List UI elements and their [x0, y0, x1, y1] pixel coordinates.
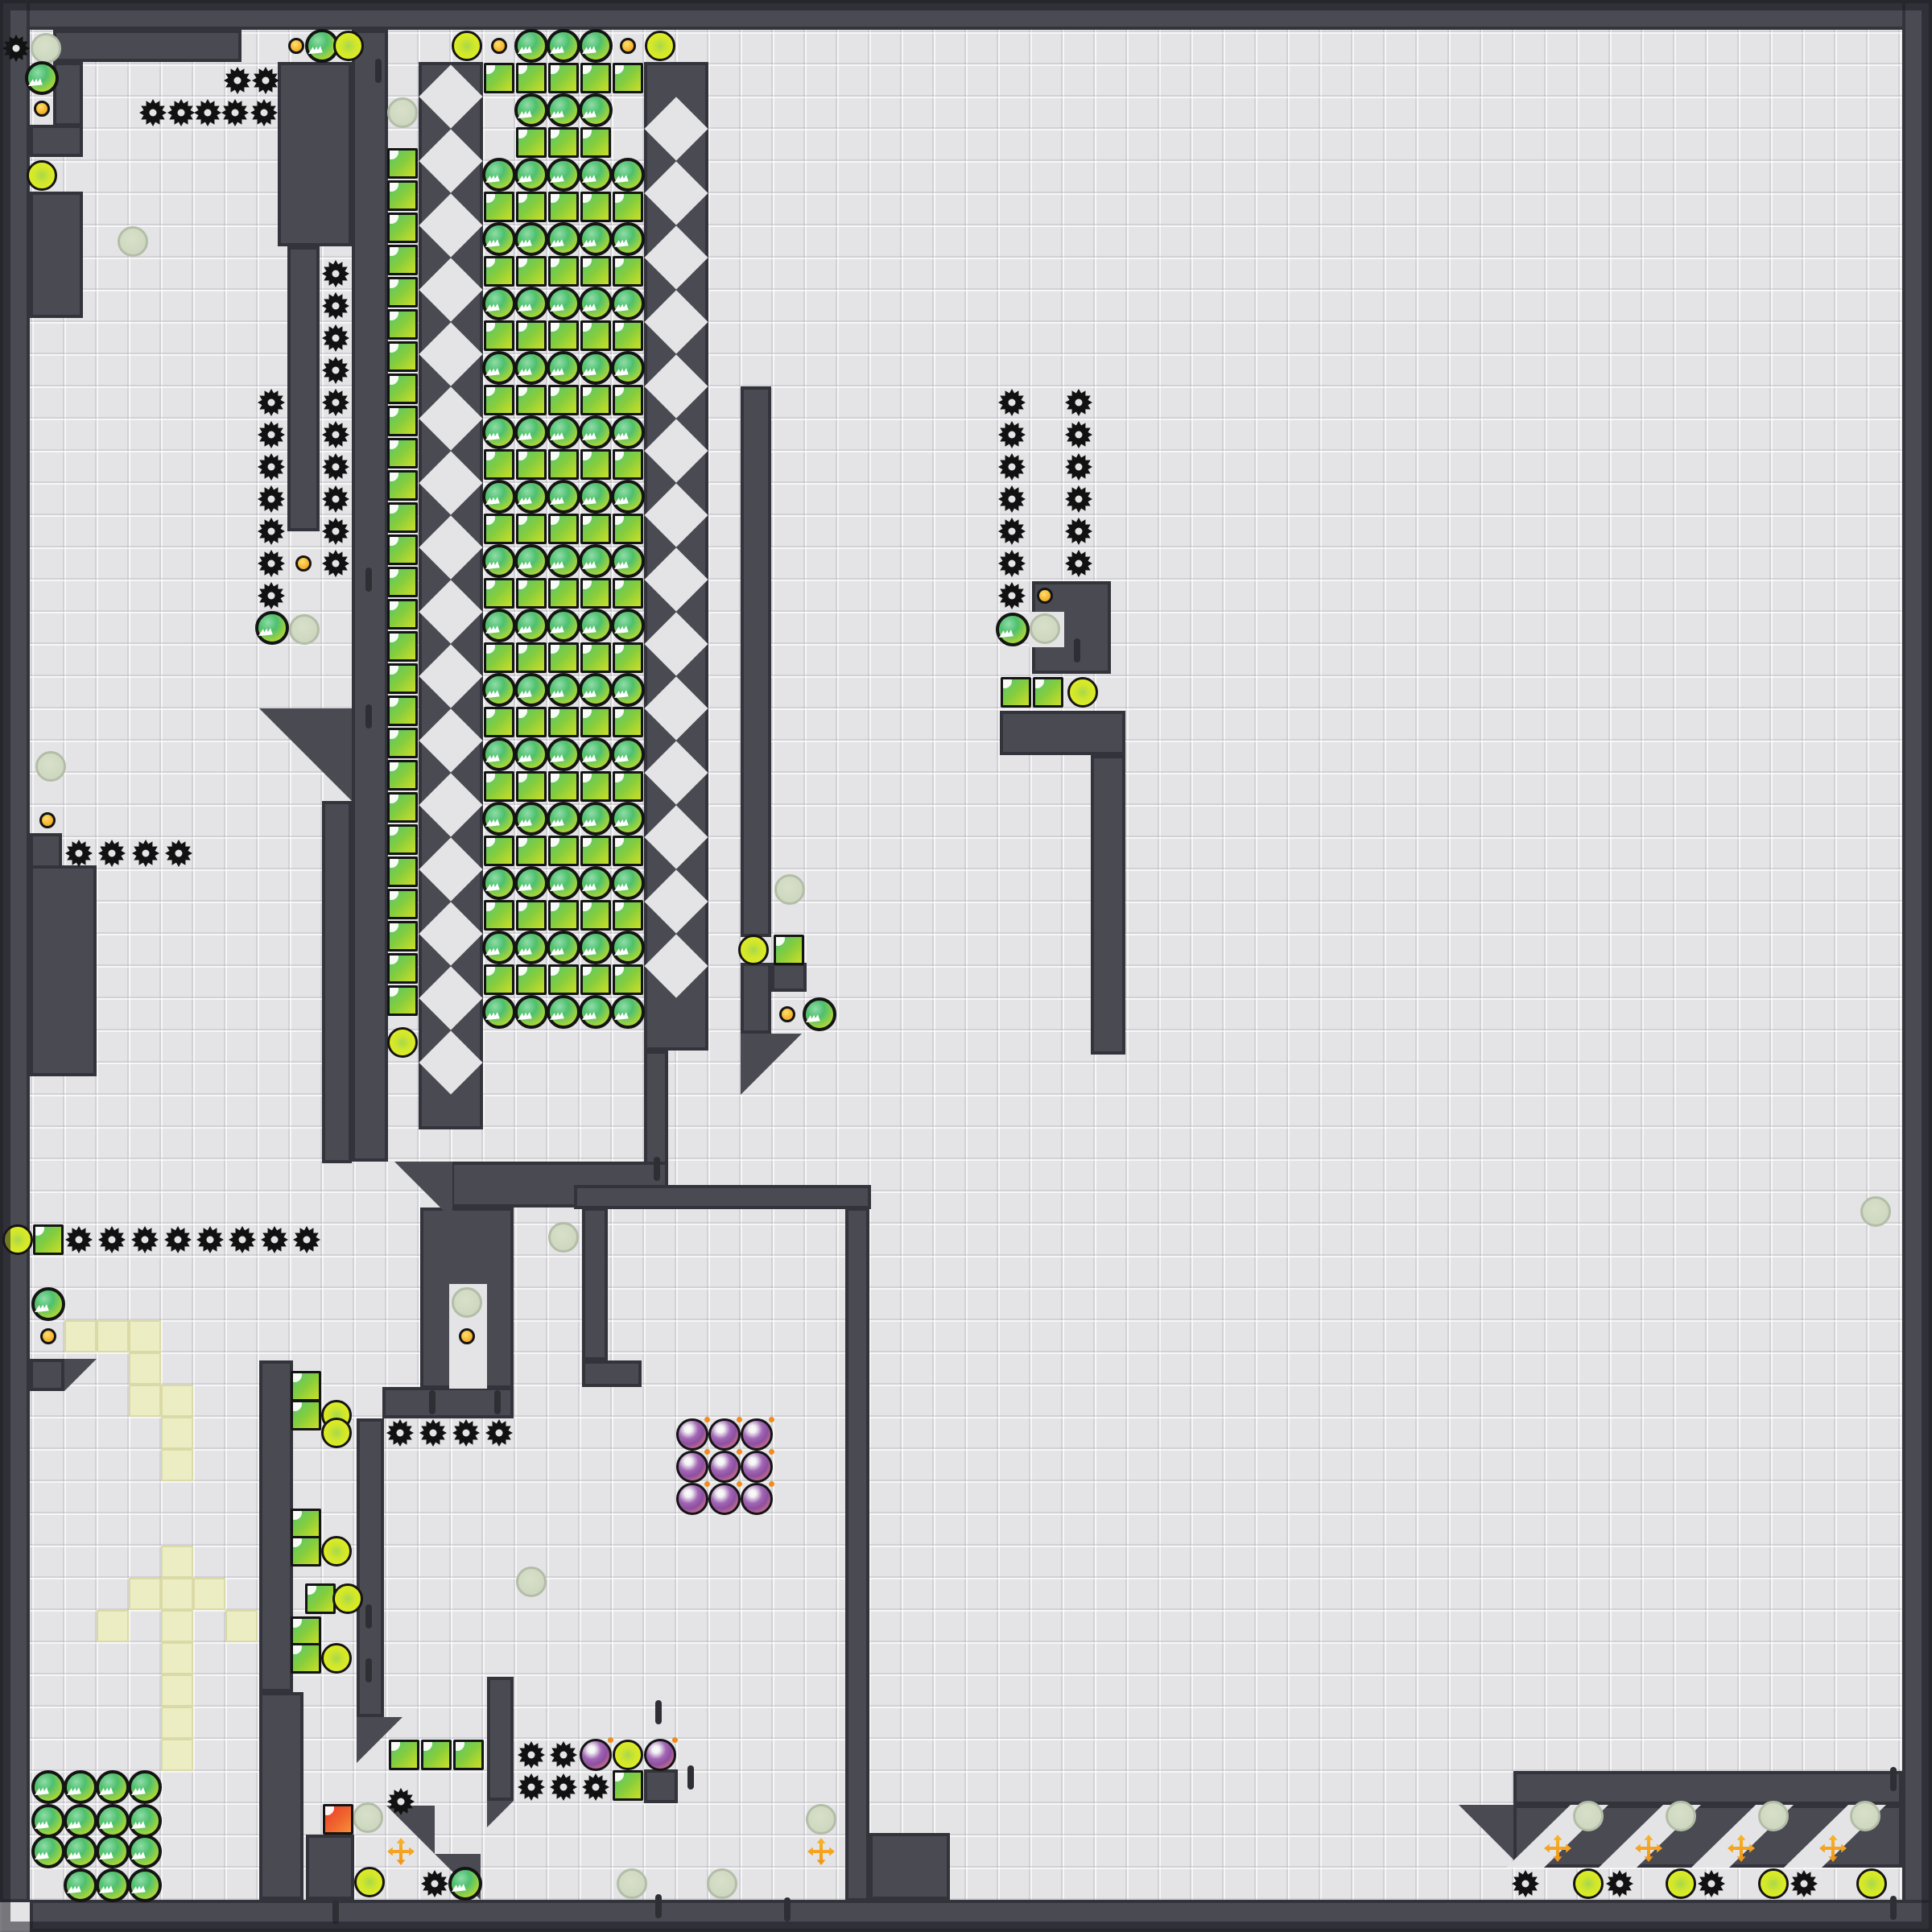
- fruit-candy-icon[interactable]: ▲▲▲: [96, 1835, 130, 1868]
- candy-block[interactable]: [548, 578, 579, 609]
- coin-circle[interactable]: [452, 31, 482, 61]
- fruit-candy-icon[interactable]: ▲▲▲: [547, 93, 580, 127]
- gear-icon[interactable]: [322, 518, 349, 545]
- coin-circle[interactable]: [1856, 1868, 1887, 1899]
- fruit-candy-icon[interactable]: ▲▲▲: [547, 351, 580, 385]
- candy-block[interactable]: [387, 406, 418, 436]
- candy-block[interactable]: [387, 985, 418, 1016]
- fruit-candy-icon[interactable]: ▲▲▲: [611, 544, 645, 578]
- bomb-icon[interactable]: [676, 1483, 708, 1515]
- gear-icon[interactable]: [167, 99, 195, 126]
- candy-block[interactable]: [387, 438, 418, 469]
- candy-block[interactable]: [484, 964, 514, 995]
- candy-block[interactable]: [387, 921, 418, 952]
- candy-block[interactable]: [484, 385, 514, 415]
- candy-block[interactable]: [613, 63, 643, 93]
- candy-block[interactable]: [774, 935, 804, 965]
- candy-block[interactable]: [580, 900, 611, 931]
- gear-icon[interactable]: [258, 518, 285, 545]
- candy-block[interactable]: [291, 1643, 321, 1674]
- gear-icon[interactable]: [322, 292, 349, 320]
- move-cross-icon[interactable]: [387, 1838, 415, 1865]
- candy-block[interactable]: [1001, 677, 1031, 708]
- fruit-candy-icon[interactable]: ▲▲▲: [611, 158, 645, 192]
- gear-icon[interactable]: [322, 421, 349, 448]
- fruit-candy-icon[interactable]: ▲▲▲: [579, 544, 613, 578]
- bomb-icon[interactable]: [644, 1739, 676, 1771]
- gear-icon[interactable]: [258, 421, 285, 448]
- candy-block[interactable]: [484, 836, 514, 866]
- candy-block[interactable]: [580, 578, 611, 609]
- candy-block[interactable]: [613, 514, 643, 544]
- candy-block[interactable]: [548, 449, 579, 480]
- coin-dot[interactable]: [295, 555, 312, 572]
- fruit-candy-icon[interactable]: ▲▲▲: [128, 1770, 162, 1804]
- gear-icon[interactable]: [250, 99, 278, 126]
- gear-icon[interactable]: [258, 389, 285, 416]
- fruit-candy-icon[interactable]: ▲▲▲: [547, 802, 580, 836]
- coin-circle[interactable]: [738, 935, 769, 965]
- fruit-candy-icon[interactable]: ▲▲▲: [547, 544, 580, 578]
- red-candy-block[interactable]: [323, 1804, 353, 1835]
- candy-block[interactable]: [516, 964, 547, 995]
- fruit-candy-icon[interactable]: ▲▲▲: [514, 93, 548, 127]
- fruit-candy-icon[interactable]: ▲▲▲: [547, 673, 580, 707]
- candy-block[interactable]: [484, 771, 514, 802]
- coin-circle[interactable]: [321, 1643, 352, 1674]
- candy-block[interactable]: [387, 824, 418, 855]
- gear-icon[interactable]: [258, 485, 285, 513]
- move-cross-icon[interactable]: [807, 1838, 835, 1865]
- gear-icon[interactable]: [998, 550, 1026, 577]
- coin-dot[interactable]: [288, 38, 304, 54]
- gear-icon[interactable]: [998, 453, 1026, 481]
- fruit-candy-icon[interactable]: ▲▲▲: [482, 158, 516, 192]
- gear-icon[interactable]: [1065, 518, 1092, 545]
- candy-block[interactable]: [580, 385, 611, 415]
- fruit-candy-icon[interactable]: ▲▲▲: [611, 609, 645, 642]
- fruit-candy-icon[interactable]: ▲▲▲: [579, 222, 613, 256]
- coin-dot[interactable]: [779, 1006, 795, 1022]
- fruit-candy-icon[interactable]: ▲▲▲: [96, 1868, 130, 1902]
- candy-block[interactable]: [484, 642, 514, 673]
- candy-block[interactable]: [613, 964, 643, 995]
- candy-block[interactable]: [484, 900, 514, 931]
- gear-icon[interactable]: [293, 1226, 320, 1253]
- candy-block[interactable]: [387, 599, 418, 630]
- candy-block[interactable]: [548, 642, 579, 673]
- fruit-candy-icon[interactable]: ▲▲▲: [579, 995, 613, 1029]
- candy-block[interactable]: [387, 857, 418, 887]
- gear-icon[interactable]: [224, 67, 251, 94]
- fruit-candy-icon[interactable]: ▲▲▲: [611, 931, 645, 964]
- gear-icon[interactable]: [452, 1419, 480, 1447]
- fruit-candy-icon[interactable]: ▲▲▲: [482, 931, 516, 964]
- fruit-candy-icon[interactable]: ▲▲▲: [547, 480, 580, 514]
- candy-block[interactable]: [387, 180, 418, 211]
- fruit-candy-icon[interactable]: ▲▲▲: [482, 544, 516, 578]
- fruit-candy-icon[interactable]: ▲▲▲: [611, 287, 645, 320]
- fruit-candy-icon[interactable]: ▲▲▲: [579, 866, 613, 900]
- gear-icon[interactable]: [1790, 1870, 1818, 1897]
- candy-block[interactable]: [387, 470, 418, 501]
- candy-block[interactable]: [421, 1740, 452, 1770]
- candy-block[interactable]: [387, 663, 418, 694]
- candy-block[interactable]: [291, 1509, 321, 1539]
- candy-block[interactable]: [484, 578, 514, 609]
- candy-block[interactable]: [580, 320, 611, 351]
- gear-icon[interactable]: [194, 99, 221, 126]
- fruit-candy-icon[interactable]: ▲▲▲: [611, 222, 645, 256]
- fruit-candy-icon[interactable]: ▲▲▲: [547, 931, 580, 964]
- fruit-candy-icon[interactable]: ▲▲▲: [611, 673, 645, 707]
- gear-icon[interactable]: [322, 389, 349, 416]
- fruit-candy-icon[interactable]: ▲▲▲: [482, 609, 516, 642]
- gear-icon[interactable]: [322, 453, 349, 481]
- gear-icon[interactable]: [322, 550, 349, 577]
- candy-block[interactable]: [613, 836, 643, 866]
- fruit-candy-icon[interactable]: ▲▲▲: [64, 1835, 97, 1868]
- candy-block[interactable]: [387, 374, 418, 404]
- fruit-candy-icon[interactable]: ▲▲▲: [128, 1835, 162, 1868]
- gear-icon[interactable]: [252, 67, 279, 94]
- candy-block[interactable]: [387, 535, 418, 565]
- candy-block[interactable]: [516, 385, 547, 415]
- bomb-icon[interactable]: [741, 1451, 773, 1483]
- candy-block[interactable]: [291, 1371, 321, 1402]
- fruit-candy-icon[interactable]: ▲▲▲: [64, 1804, 97, 1838]
- gear-icon[interactable]: [229, 1226, 256, 1253]
- candy-block[interactable]: [580, 514, 611, 544]
- candy-block[interactable]: [613, 707, 643, 737]
- candy-block[interactable]: [516, 771, 547, 802]
- candy-block[interactable]: [580, 771, 611, 802]
- gear-icon[interactable]: [1606, 1870, 1633, 1897]
- candy-block[interactable]: [613, 771, 643, 802]
- gear-icon[interactable]: [258, 582, 285, 609]
- gear-icon[interactable]: [258, 550, 285, 577]
- gear-icon[interactable]: [98, 840, 126, 867]
- candy-block[interactable]: [516, 900, 547, 931]
- candy-block[interactable]: [548, 192, 579, 222]
- bomb-icon[interactable]: [708, 1451, 741, 1483]
- candy-block[interactable]: [516, 642, 547, 673]
- fruit-candy-icon[interactable]: ▲▲▲: [514, 287, 548, 320]
- candy-block[interactable]: [484, 514, 514, 544]
- candy-block[interactable]: [387, 245, 418, 275]
- candy-block[interactable]: [484, 449, 514, 480]
- fruit-candy-icon[interactable]: ▲▲▲: [547, 287, 580, 320]
- gear-icon[interactable]: [485, 1419, 513, 1447]
- fruit-candy-icon[interactable]: ▲▲▲: [514, 158, 548, 192]
- candy-block[interactable]: [580, 127, 611, 158]
- fruit-candy-icon[interactable]: ▲▲▲: [579, 609, 613, 642]
- candy-block[interactable]: [516, 836, 547, 866]
- fruit-candy-icon[interactable]: ▲▲▲: [996, 613, 1030, 646]
- gear-icon[interactable]: [550, 1773, 577, 1801]
- coin-dot[interactable]: [34, 101, 50, 117]
- gear-icon[interactable]: [258, 453, 285, 481]
- fruit-candy-icon[interactable]: ▲▲▲: [514, 351, 548, 385]
- coin-circle[interactable]: [321, 1418, 352, 1448]
- fruit-candy-icon[interactable]: ▲▲▲: [514, 995, 548, 1029]
- candy-block[interactable]: [548, 63, 579, 93]
- fruit-candy-icon[interactable]: ▲▲▲: [579, 29, 613, 63]
- coin-circle[interactable]: [613, 1740, 643, 1770]
- gear-icon[interactable]: [1698, 1870, 1725, 1897]
- candy-block[interactable]: [548, 514, 579, 544]
- gear-icon[interactable]: [165, 840, 192, 867]
- candy-block[interactable]: [516, 256, 547, 287]
- candy-block[interactable]: [453, 1740, 484, 1770]
- candy-block[interactable]: [580, 707, 611, 737]
- fruit-candy-icon[interactable]: ▲▲▲: [482, 480, 516, 514]
- fruit-candy-icon[interactable]: ▲▲▲: [514, 931, 548, 964]
- fruit-candy-icon[interactable]: ▲▲▲: [547, 29, 580, 63]
- coin-circle[interactable]: [354, 1867, 385, 1897]
- coin-circle[interactable]: [1067, 677, 1098, 708]
- fruit-candy-icon[interactable]: ▲▲▲: [611, 351, 645, 385]
- fruit-candy-icon[interactable]: ▲▲▲: [64, 1770, 97, 1804]
- fruit-candy-icon[interactable]: ▲▲▲: [255, 611, 289, 645]
- gear-icon[interactable]: [139, 99, 167, 126]
- coin-dot[interactable]: [620, 38, 636, 54]
- candy-block[interactable]: [389, 1740, 419, 1770]
- fruit-candy-icon[interactable]: ▲▲▲: [579, 351, 613, 385]
- fruit-candy-icon[interactable]: ▲▲▲: [96, 1770, 130, 1804]
- candy-block[interactable]: [580, 256, 611, 287]
- fruit-candy-icon[interactable]: ▲▲▲: [514, 544, 548, 578]
- candy-block[interactable]: [387, 213, 418, 243]
- coin-circle[interactable]: [332, 1583, 363, 1614]
- gear-icon[interactable]: [221, 99, 249, 126]
- coin-dot[interactable]: [40, 1328, 56, 1344]
- coin-circle[interactable]: [27, 160, 57, 191]
- fruit-candy-icon[interactable]: ▲▲▲: [482, 995, 516, 1029]
- candy-block[interactable]: [516, 320, 547, 351]
- candy-block[interactable]: [613, 578, 643, 609]
- fruit-candy-icon[interactable]: ▲▲▲: [128, 1868, 162, 1902]
- candy-block[interactable]: [484, 192, 514, 222]
- gear-icon[interactable]: [1512, 1870, 1539, 1897]
- fruit-candy-icon[interactable]: ▲▲▲: [514, 802, 548, 836]
- fruit-candy-icon[interactable]: ▲▲▲: [611, 866, 645, 900]
- gear-icon[interactable]: [65, 840, 93, 867]
- bomb-icon[interactable]: [580, 1739, 612, 1771]
- candy-block[interactable]: [387, 889, 418, 919]
- gear-icon[interactable]: [322, 324, 349, 352]
- fruit-candy-icon[interactable]: ▲▲▲: [579, 480, 613, 514]
- fruit-candy-icon[interactable]: ▲▲▲: [482, 866, 516, 900]
- fruit-candy-icon[interactable]: ▲▲▲: [547, 995, 580, 1029]
- candy-block[interactable]: [548, 900, 579, 931]
- fruit-candy-icon[interactable]: ▲▲▲: [514, 480, 548, 514]
- candy-block[interactable]: [580, 63, 611, 93]
- candy-block[interactable]: [387, 502, 418, 533]
- candy-block[interactable]: [580, 964, 611, 995]
- coin-circle[interactable]: [645, 31, 675, 61]
- candy-block[interactable]: [387, 277, 418, 308]
- candy-block[interactable]: [387, 631, 418, 662]
- candy-block[interactable]: [387, 792, 418, 823]
- gear-icon[interactable]: [998, 485, 1026, 513]
- fruit-candy-icon[interactable]: ▲▲▲: [31, 1835, 65, 1868]
- candy-block[interactable]: [613, 256, 643, 287]
- gear-icon[interactable]: [65, 1226, 93, 1253]
- fruit-candy-icon[interactable]: ▲▲▲: [579, 802, 613, 836]
- fruit-candy-icon[interactable]: ▲▲▲: [514, 866, 548, 900]
- fruit-candy-icon[interactable]: ▲▲▲: [579, 158, 613, 192]
- candy-block[interactable]: [548, 127, 579, 158]
- candy-block[interactable]: [516, 127, 547, 158]
- candy-block[interactable]: [548, 771, 579, 802]
- candy-block[interactable]: [548, 964, 579, 995]
- fruit-candy-icon[interactable]: ▲▲▲: [25, 61, 59, 95]
- candy-block[interactable]: [548, 320, 579, 351]
- gear-icon[interactable]: [998, 421, 1026, 448]
- fruit-candy-icon[interactable]: ▲▲▲: [482, 673, 516, 707]
- gear-icon[interactable]: [998, 518, 1026, 545]
- candy-block[interactable]: [387, 728, 418, 758]
- fruit-candy-icon[interactable]: ▲▲▲: [128, 1804, 162, 1838]
- gear-icon[interactable]: [261, 1226, 288, 1253]
- candy-block[interactable]: [387, 567, 418, 597]
- candy-block[interactable]: [291, 1536, 321, 1567]
- fruit-candy-icon[interactable]: ▲▲▲: [31, 1804, 65, 1838]
- gear-icon[interactable]: [196, 1226, 224, 1253]
- candy-block[interactable]: [613, 449, 643, 480]
- gear-icon[interactable]: [132, 840, 159, 867]
- candy-block[interactable]: [387, 148, 418, 179]
- coin-circle[interactable]: [2, 1224, 33, 1255]
- fruit-candy-icon[interactable]: ▲▲▲: [547, 866, 580, 900]
- fruit-candy-icon[interactable]: ▲▲▲: [611, 737, 645, 771]
- candy-block[interactable]: [291, 1400, 321, 1430]
- candy-block[interactable]: [580, 642, 611, 673]
- candy-block[interactable]: [484, 707, 514, 737]
- candy-block[interactable]: [548, 256, 579, 287]
- candy-block[interactable]: [613, 642, 643, 673]
- fruit-candy-icon[interactable]: ▲▲▲: [611, 802, 645, 836]
- fruit-candy-icon[interactable]: ▲▲▲: [96, 1804, 130, 1838]
- candy-block[interactable]: [548, 707, 579, 737]
- candy-block[interactable]: [387, 696, 418, 726]
- coin-circle[interactable]: [333, 31, 364, 61]
- gear-icon[interactable]: [322, 485, 349, 513]
- gear-icon[interactable]: [550, 1741, 577, 1769]
- candy-block[interactable]: [484, 63, 514, 93]
- candy-block[interactable]: [548, 385, 579, 415]
- fruit-candy-icon[interactable]: ▲▲▲: [579, 931, 613, 964]
- coin-circle[interactable]: [1666, 1868, 1696, 1899]
- fruit-candy-icon[interactable]: ▲▲▲: [514, 415, 548, 449]
- fruit-candy-icon[interactable]: ▲▲▲: [482, 802, 516, 836]
- candy-block[interactable]: [387, 309, 418, 340]
- candy-block[interactable]: [305, 1583, 336, 1614]
- fruit-candy-icon[interactable]: ▲▲▲: [611, 995, 645, 1029]
- fruit-candy-icon[interactable]: ▲▲▲: [31, 1287, 65, 1321]
- candy-block[interactable]: [516, 192, 547, 222]
- candy-block[interactable]: [613, 1770, 643, 1801]
- candy-block[interactable]: [580, 192, 611, 222]
- fruit-candy-icon[interactable]: ▲▲▲: [448, 1867, 482, 1901]
- candy-block[interactable]: [1033, 677, 1063, 708]
- gear-icon[interactable]: [322, 260, 349, 287]
- gear-icon[interactable]: [1065, 485, 1092, 513]
- fruit-candy-icon[interactable]: ▲▲▲: [579, 673, 613, 707]
- gear-icon[interactable]: [131, 1226, 159, 1253]
- gear-icon[interactable]: [386, 1419, 414, 1447]
- fruit-candy-icon[interactable]: ▲▲▲: [803, 997, 836, 1031]
- fruit-candy-icon[interactable]: ▲▲▲: [514, 609, 548, 642]
- candy-block[interactable]: [613, 320, 643, 351]
- candy-block[interactable]: [484, 256, 514, 287]
- fruit-candy-icon[interactable]: ▲▲▲: [611, 480, 645, 514]
- gear-icon[interactable]: [582, 1773, 609, 1801]
- fruit-candy-icon[interactable]: ▲▲▲: [547, 609, 580, 642]
- coin-dot[interactable]: [39, 812, 56, 828]
- coin-circle[interactable]: [387, 1027, 418, 1058]
- coin-circle[interactable]: [1573, 1868, 1604, 1899]
- fruit-candy-icon[interactable]: ▲▲▲: [547, 415, 580, 449]
- coin-dot[interactable]: [491, 38, 507, 54]
- fruit-candy-icon[interactable]: ▲▲▲: [514, 673, 548, 707]
- fruit-candy-icon[interactable]: ▲▲▲: [64, 1868, 97, 1902]
- bomb-icon[interactable]: [676, 1451, 708, 1483]
- coin-dot[interactable]: [1037, 588, 1053, 604]
- candy-block[interactable]: [613, 385, 643, 415]
- fruit-candy-icon[interactable]: ▲▲▲: [547, 158, 580, 192]
- candy-block[interactable]: [516, 578, 547, 609]
- fruit-candy-icon[interactable]: ▲▲▲: [514, 29, 548, 63]
- fruit-candy-icon[interactable]: ▲▲▲: [514, 737, 548, 771]
- bomb-icon[interactable]: [741, 1418, 773, 1451]
- fruit-candy-icon[interactable]: ▲▲▲: [579, 287, 613, 320]
- fruit-candy-icon[interactable]: ▲▲▲: [482, 287, 516, 320]
- candy-block[interactable]: [516, 449, 547, 480]
- fruit-candy-icon[interactable]: ▲▲▲: [611, 415, 645, 449]
- gear-icon[interactable]: [998, 389, 1026, 416]
- candy-block[interactable]: [516, 63, 547, 93]
- candy-block[interactable]: [484, 320, 514, 351]
- gear-icon[interactable]: [1065, 421, 1092, 448]
- fruit-candy-icon[interactable]: ▲▲▲: [547, 222, 580, 256]
- candy-block[interactable]: [387, 760, 418, 791]
- candy-block[interactable]: [516, 707, 547, 737]
- fruit-candy-icon[interactable]: ▲▲▲: [514, 222, 548, 256]
- gear-icon[interactable]: [421, 1870, 448, 1897]
- gear-icon[interactable]: [518, 1741, 545, 1769]
- fruit-candy-icon[interactable]: ▲▲▲: [579, 93, 613, 127]
- candy-block[interactable]: [580, 836, 611, 866]
- gear-icon[interactable]: [98, 1226, 126, 1253]
- candy-block[interactable]: [387, 341, 418, 372]
- gear-icon[interactable]: [998, 582, 1026, 609]
- coin-circle[interactable]: [1758, 1868, 1789, 1899]
- fruit-candy-icon[interactable]: ▲▲▲: [482, 415, 516, 449]
- gear-icon[interactable]: [322, 357, 349, 384]
- gear-icon[interactable]: [419, 1419, 447, 1447]
- candy-block[interactable]: [548, 836, 579, 866]
- fruit-candy-icon[interactable]: ▲▲▲: [482, 737, 516, 771]
- bomb-icon[interactable]: [708, 1418, 741, 1451]
- candy-block[interactable]: [33, 1224, 64, 1255]
- coin-dot[interactable]: [459, 1328, 475, 1344]
- fruit-candy-icon[interactable]: ▲▲▲: [482, 351, 516, 385]
- gear-icon[interactable]: [1065, 389, 1092, 416]
- bomb-icon[interactable]: [741, 1483, 773, 1515]
- gear-icon[interactable]: [1065, 453, 1092, 481]
